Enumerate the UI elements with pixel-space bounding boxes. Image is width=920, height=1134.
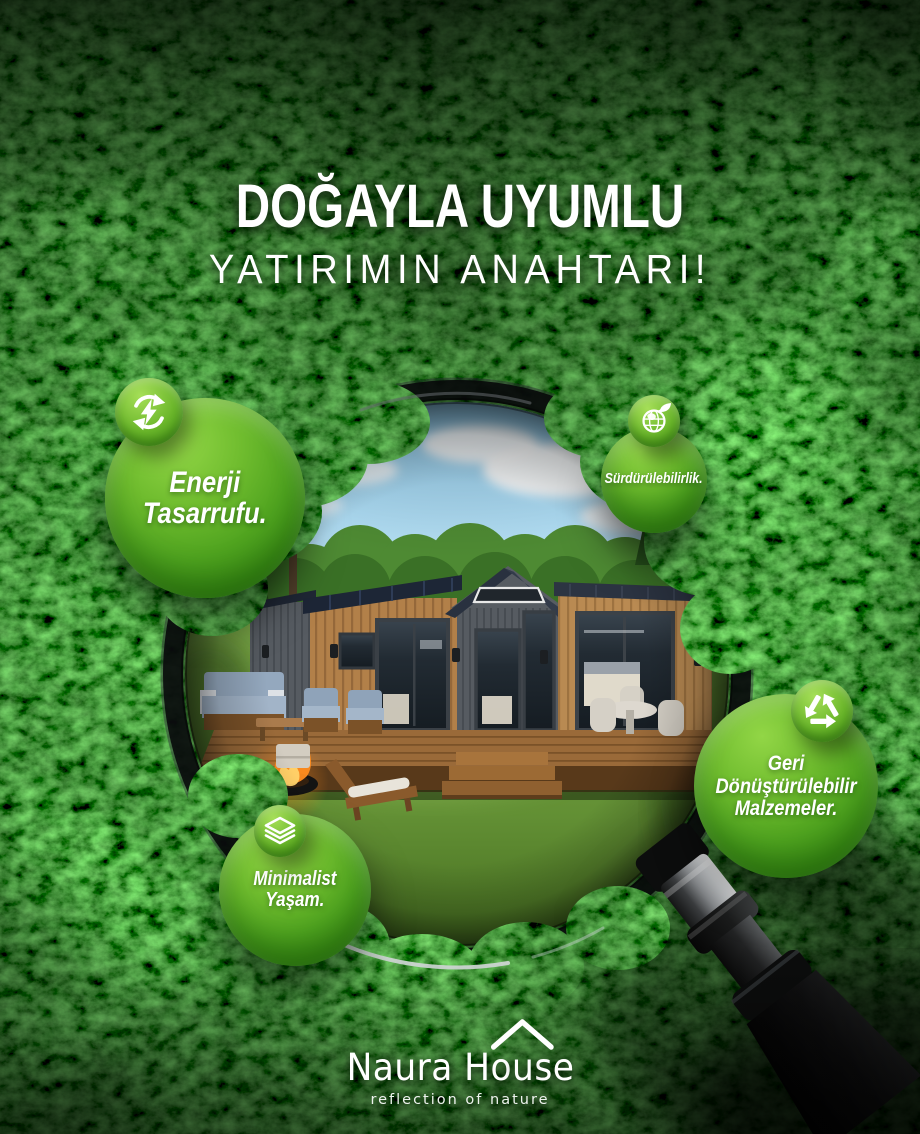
globe-leaf-icon [628, 395, 680, 447]
badge-energy-line1: Enerji [143, 467, 267, 499]
badge-sustainability-line1: Sürdürülebilirlik. [605, 472, 703, 487]
brand-tagline: reflection of nature [0, 1092, 920, 1108]
badge-minimalist-label: Minimalist Yaşam. [253, 869, 336, 911]
brand-name-roof-letter: u [512, 1046, 534, 1089]
brand-name-u: u [512, 1046, 534, 1089]
badge-energy-line2: Tasarrufu. [143, 498, 267, 530]
badge-minimalist-line1: Minimalist [253, 869, 336, 890]
brand-logo: Naura House reflection of nature [0, 1046, 920, 1108]
layers-icon [254, 805, 306, 857]
badge-recyclable-line2: Dönüştürülebilir [715, 775, 856, 798]
badge-recyclable-line3: Malzemeler. [715, 797, 856, 820]
headline-line1: DOĞAYLA UYUMLU [101, 176, 819, 237]
badge-minimalist-line2: Yaşam. [253, 890, 336, 911]
headline-line2: YATIRIMIN ANAHTARI! [32, 249, 888, 290]
brand-name-part1: Naura Ho [346, 1046, 511, 1089]
badge-recyclable-line1: Geri [715, 752, 856, 775]
brand-name-part2: se [534, 1046, 574, 1089]
brand-name: Naura House [346, 1046, 574, 1089]
recycle-icon [791, 680, 853, 742]
badge-energy-label: Enerji Tasarrufu. [143, 467, 267, 530]
poster-root: DOĞAYLA UYUMLU YATIRIMIN ANAHTARI! Enerj… [0, 0, 920, 1134]
badge-sustainability-label: Sürdürülebilirlik. [605, 472, 703, 487]
house-roof-icon [490, 1018, 553, 1050]
energy-cycle-icon [115, 378, 183, 446]
headline: DOĞAYLA UYUMLU YATIRIMIN ANAHTARI! [0, 176, 920, 290]
badge-recyclable-label: Geri Dönüştürülebilir Malzemeler. [715, 752, 856, 820]
